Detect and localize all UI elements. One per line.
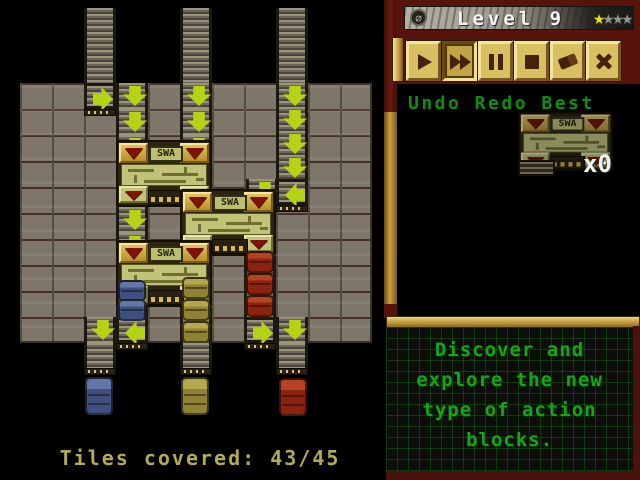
machine-dock [148,290,184,305]
machine-maze-line [184,267,187,276]
conveyor-arrow-left[interactable] [276,179,308,205]
arrow-down-icon [283,320,307,340]
conveyor-arrow-down[interactable] [84,317,116,343]
machine-body [121,164,207,186]
level-stars: ★★★★ [593,7,631,29]
message-box: Discover andexplore the newtype of actio… [386,316,640,480]
conveyor-end-cap [276,368,308,375]
red-triangle-icon [526,119,544,129]
arrow-down-icon [187,86,211,106]
target-barrel-blue [85,377,113,415]
play-button[interactable] [406,41,441,81]
machine-maze-line [208,229,250,232]
machine-maze-line [597,145,605,148]
arrow-right-icon [93,87,113,111]
machine-port [119,186,148,203]
machine-maze-line [198,224,201,232]
machine-maze-line [134,175,137,183]
machine-label: SWA [213,195,247,211]
conveyor-end-cap [244,343,276,350]
machine-port [581,115,610,133]
red-triangle-icon [250,197,268,208]
machine-port [183,192,212,212]
pause-button[interactable] [478,41,513,81]
machine-body [185,213,271,235]
arrow-down-icon [123,86,147,106]
red-triangle-icon [125,248,143,259]
machine-maze-line [162,173,198,176]
machine-maze-line [248,216,251,225]
conveyor-arrow-down[interactable] [116,109,148,135]
machine-maze-line [564,141,600,144]
machine-maze-line [128,169,154,172]
machine-maze-line [536,143,539,150]
machine-maze-line [260,227,268,230]
conveyor-end-cap [84,368,116,375]
message-line: type of action [386,395,633,425]
conveyor-arrow-down[interactable] [116,207,148,233]
arrow-down-icon [283,158,307,178]
arrow-down-icon [123,112,147,132]
message-box-bottom-border [386,471,640,480]
level-menu-icon[interactable]: ∅ [410,9,427,26]
conveyor-end-cap [180,368,212,375]
message-text: Discover andexplore the newtype of actio… [386,328,633,471]
red-triangle-icon [250,240,268,249]
tiles-covered-status: Tiles covered: 43/45 [20,446,380,470]
conveyor-arrow-down[interactable] [276,155,308,181]
machine-port [244,235,273,252]
conveyor-strip[interactable] [84,8,116,83]
conveyor-end-cap [116,343,148,350]
message-box-right-border [633,326,640,480]
conveyor-arrow-right[interactable] [244,317,276,343]
star-empty-icon: ★ [622,7,631,29]
arrow-down-icon [283,86,307,106]
machine-maze-line [226,222,262,225]
machine-label: SWA [149,246,183,262]
history-labels[interactable]: Undo Redo Best [408,93,595,114]
stop-icon [525,55,539,69]
conveyor-strip[interactable] [180,8,212,83]
machine-maze-line [144,280,186,283]
arrow-down-icon [283,110,307,130]
conveyor-arrow-down[interactable] [276,131,308,157]
message-line: Discover and [386,335,633,365]
game-screen: SWASWASWA ∅ Level 9 ★★★★ Undo Redo Best … [0,0,640,480]
inventory-conveyor-stub [518,160,555,176]
machine-dock [212,239,248,254]
machine-maze-line [128,269,154,272]
toolbar-frame [392,37,404,82]
star-empty-icon: ★ [612,7,621,29]
red-triangle-icon [125,191,143,200]
arrow-down-icon [283,134,307,154]
machine-maze-line [192,218,218,221]
eraser-button[interactable] [550,41,585,81]
barrel-olive [182,299,210,321]
conveyor-arrow-down[interactable] [180,83,212,109]
arrow-left-icon [285,183,305,207]
panel-border-middle [384,112,397,304]
arrow-down-icon [91,320,115,340]
red-triangle-icon [587,119,605,129]
target-barrel-red [279,378,307,416]
machine-dock [148,190,184,205]
barrel-blue [118,299,146,321]
machine-port [244,192,273,212]
machine-maze-line [162,273,198,276]
conveyor-arrow-down[interactable] [276,107,308,133]
close-button[interactable] [586,41,621,81]
arrow-down-icon [187,112,211,132]
level-title: Level 9 [457,8,565,30]
machine-maze-line [585,136,588,144]
machine-port [180,143,209,163]
machine-label: SWA [149,146,183,162]
machine-label: SWA [551,117,585,131]
message-box-top-border [386,316,640,328]
red-triangle-icon [186,148,204,159]
machine-port [119,143,148,163]
message-line: blocks. [386,425,633,455]
fast-forward-icon [460,54,471,70]
machine-port [119,243,148,263]
pause-icon [498,54,503,70]
machine-port [180,243,209,263]
conveyor-end-cap [84,109,116,116]
target-barrel-olive [181,377,209,415]
star-earned-icon: ★ [593,7,602,29]
red-triangle-icon [125,148,143,159]
conveyor-arrow-down[interactable] [276,83,308,109]
star-empty-icon: ★ [603,7,612,29]
eraser-icon [558,53,579,70]
machine-maze-line [144,180,186,183]
machine-dock [550,156,586,169]
conveyor-arrow-down[interactable] [116,83,148,109]
conveyor-arrow-down[interactable] [180,109,212,135]
barrel-red [246,295,274,317]
machine-maze-line [530,138,556,141]
machine-maze-line [184,167,187,176]
arrow-left-icon [125,321,145,345]
conveyor-strip[interactable] [276,8,308,83]
conveyor-arrow-right[interactable] [84,83,116,109]
machine-port [521,115,550,133]
play-icon [418,54,432,70]
machine-maze-line [196,178,204,181]
fast-forward-button[interactable] [442,41,477,81]
arrow-right-icon [253,321,273,345]
message-line: explore the new [386,365,633,395]
barrel-olive [182,321,210,343]
stop-button[interactable] [514,41,549,81]
red-triangle-icon [189,197,207,208]
conveyor-end-cap [276,205,308,212]
conveyor-arrow-down[interactable] [276,317,308,343]
level-bar: ∅ Level 9 ★★★★ [404,6,634,30]
pause-icon [489,54,494,70]
machine-maze-line [546,147,588,150]
barrel-red [246,273,274,295]
barrel-olive [182,277,210,299]
red-triangle-icon [186,248,204,259]
barrel-red [246,251,274,273]
arrow-down-icon [123,210,147,230]
inventory-count: x0 [583,150,612,178]
fast-forward-icon [450,54,461,70]
